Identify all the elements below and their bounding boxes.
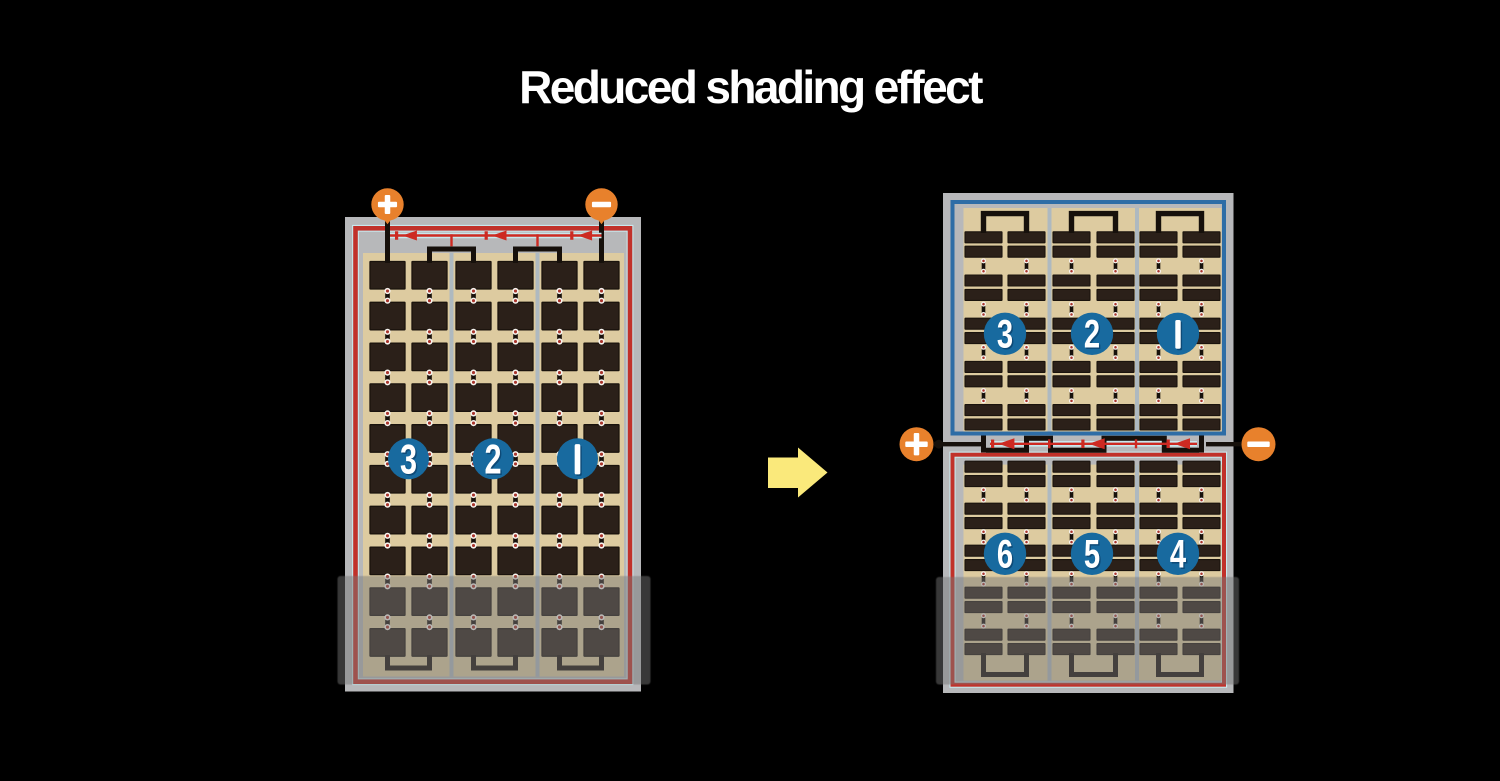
- svg-text:6: 6: [997, 532, 1013, 577]
- svg-text:5: 5: [1084, 532, 1100, 577]
- svg-text:Reduced shading effect: Reduced shading effect: [519, 61, 983, 113]
- svg-text:3: 3: [997, 312, 1013, 357]
- svg-text:2: 2: [484, 436, 501, 483]
- svg-text:3: 3: [400, 436, 417, 483]
- svg-text:4: 4: [1170, 532, 1187, 577]
- svg-text:2: 2: [1084, 312, 1100, 357]
